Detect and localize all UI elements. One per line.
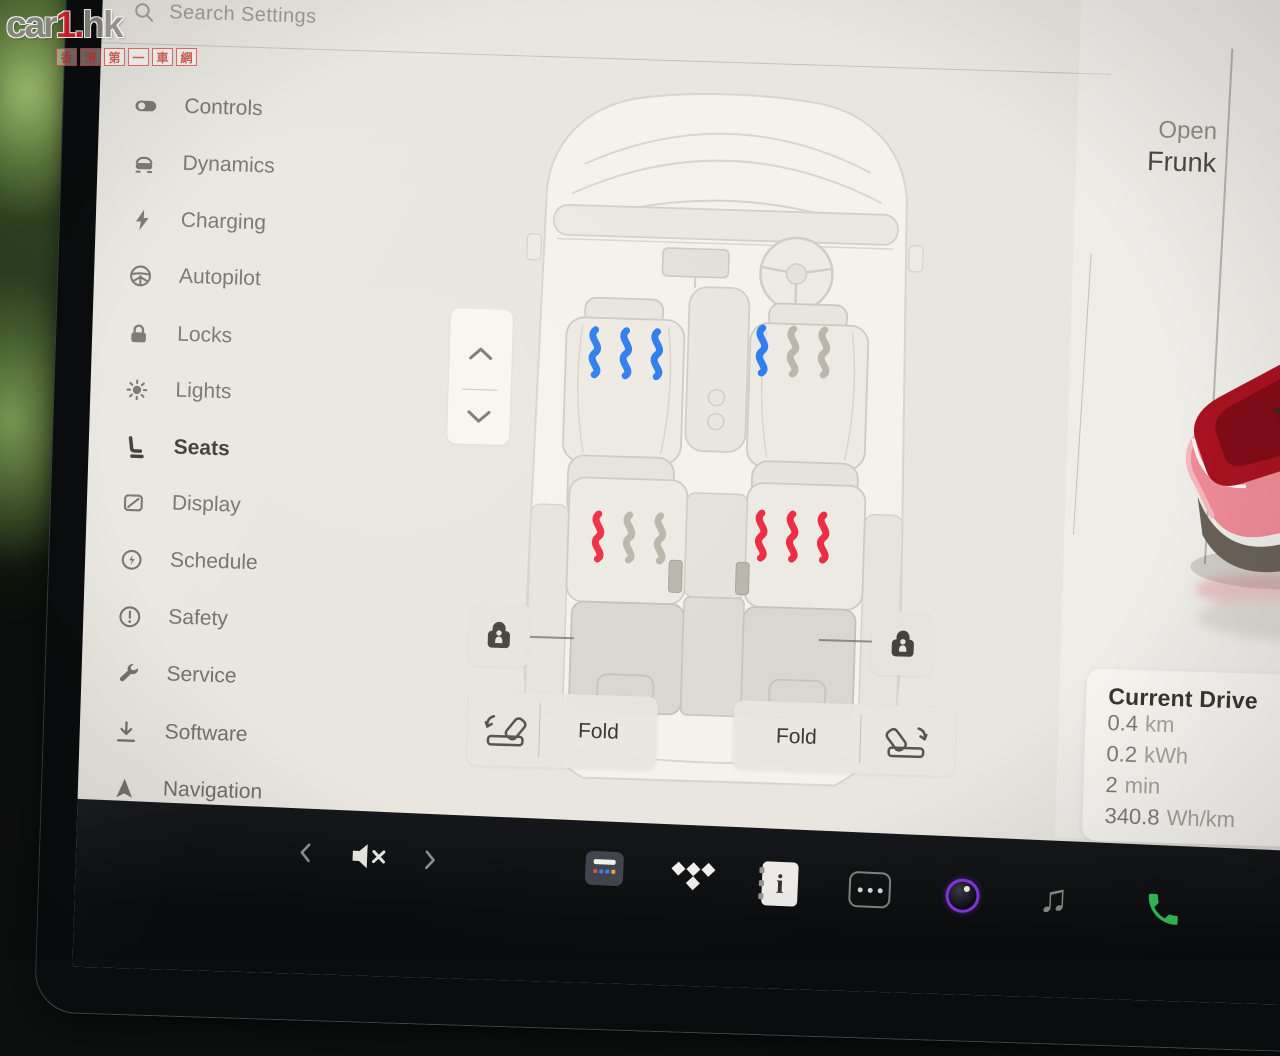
- scroll-divider: [462, 389, 498, 391]
- sidebar-item-seats[interactable]: Seats: [122, 426, 230, 469]
- header-divider: [101, 42, 1111, 75]
- display-icon: [121, 489, 147, 515]
- alert-circle-icon: [117, 603, 143, 629]
- child-lock-icon: [484, 619, 513, 650]
- sidebar-item-software[interactable]: Software: [113, 711, 248, 755]
- watermark: car1.hk 香港第一車網: [6, 4, 197, 66]
- download-icon: [113, 718, 139, 744]
- seat-heater-rear-right[interactable]: [749, 507, 835, 566]
- watermark-logo: car1.hk: [6, 4, 197, 46]
- stat-efficiency: 340.8 Wh/km: [1104, 803, 1280, 844]
- open-frunk-button[interactable]: Open Frunk: [1076, 114, 1218, 180]
- tesla-touchscreen: Search Settings Controls Dynamics Chargi…: [34, 0, 1280, 1056]
- scroll-up-button[interactable]: [468, 345, 494, 362]
- music-app-icon[interactable]: ♫: [1038, 878, 1070, 919]
- volume-muted-icon[interactable]: [350, 839, 389, 875]
- sidebar-item-schedule[interactable]: Schedule: [119, 539, 259, 583]
- padlock-icon: [126, 321, 152, 347]
- open-frunk-line2: Frunk: [1076, 143, 1217, 180]
- sidebar-item-lights[interactable]: Lights: [124, 369, 232, 412]
- seat-heater-front-right[interactable]: [750, 322, 836, 381]
- sidebar-item-dynamics[interactable]: Dynamics: [131, 142, 275, 186]
- seat-fold-icon: [884, 720, 931, 761]
- fold-left-button[interactable]: Fold: [467, 691, 658, 771]
- sidebar-item-controls[interactable]: Controls: [133, 85, 263, 129]
- owners-manual-icon[interactable]: i: [761, 861, 799, 906]
- seat-fold-icon: [480, 708, 527, 749]
- red-car-frunk-render: [1123, 315, 1280, 662]
- seat-page-scroll: [447, 308, 513, 445]
- clock-icon: [119, 546, 145, 572]
- seat-icon: [122, 433, 148, 459]
- seat-heater-front-left[interactable]: [583, 323, 669, 382]
- display-ui: Search Settings Controls Dynamics Chargi…: [72, 0, 1280, 1009]
- open-frunk-line1: Open: [1077, 114, 1218, 147]
- sidebar-item-safety[interactable]: Safety: [117, 596, 229, 639]
- selected-highlight: [108, 420, 374, 480]
- sun-icon: [124, 377, 150, 403]
- phone-app-icon[interactable]: [1142, 889, 1184, 931]
- app-launcher-icon[interactable]: [585, 851, 624, 887]
- bolt-icon: [129, 207, 155, 233]
- toggle-icon: [133, 93, 159, 119]
- watermark-tagline: 香港第一車網: [56, 48, 197, 66]
- more-apps-icon[interactable]: [848, 871, 892, 909]
- previous-track-icon[interactable]: [294, 841, 317, 864]
- child-lock-icon: [888, 628, 917, 659]
- steering-wheel-icon: [128, 263, 154, 289]
- wrench-icon: [115, 660, 141, 686]
- child-lock-left-button[interactable]: [467, 602, 531, 668]
- car-icon: [131, 150, 157, 176]
- navigation-arrow-icon: [112, 775, 138, 801]
- sidebar-item-locks[interactable]: Locks: [126, 313, 233, 356]
- camera-app-icon[interactable]: [945, 878, 980, 913]
- fold-left-label: Fold: [539, 693, 658, 771]
- fold-right-button[interactable]: Fold: [732, 700, 956, 776]
- current-drive-card: Current Drive 0.4 km 0.2 kWh 2 min 340.8…: [1082, 668, 1280, 851]
- sidebar-item-charging[interactable]: Charging: [129, 199, 266, 243]
- next-track-icon[interactable]: [418, 849, 441, 872]
- sidebar-item-service[interactable]: Service: [115, 653, 237, 697]
- fold-right-label: Fold: [732, 700, 861, 773]
- sidebar-item-autopilot[interactable]: Autopilot: [127, 255, 261, 299]
- child-lock-right-button[interactable]: [871, 611, 935, 677]
- sidebar-item-display[interactable]: Display: [120, 482, 241, 526]
- scroll-down-button[interactable]: [466, 409, 492, 426]
- tidal-icon[interactable]: [670, 860, 717, 892]
- seat-heater-rear-left[interactable]: [586, 508, 672, 567]
